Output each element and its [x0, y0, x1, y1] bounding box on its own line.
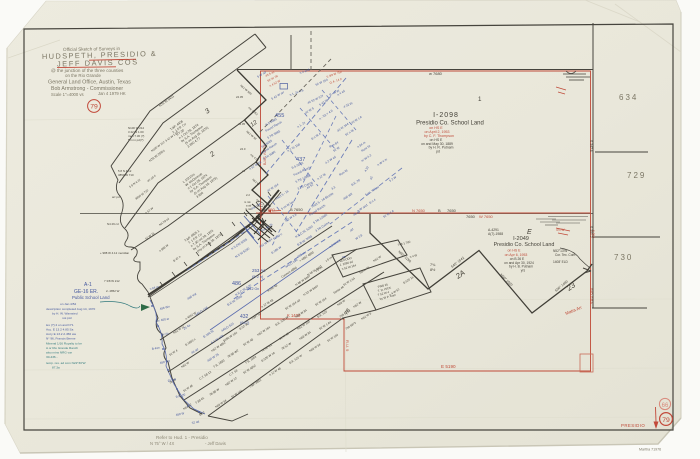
svg-text:1912 Gn: 1912 Gn	[246, 287, 259, 291]
svg-text:m mk: m mk	[244, 200, 251, 204]
svg-text:24.0: 24.0	[240, 147, 246, 151]
svg-text:5 350: 5 350	[591, 230, 595, 238]
svg-text:yrs: yrs	[521, 268, 526, 272]
svg-text:1: 1	[478, 96, 482, 103]
svg-text:79: 79	[662, 417, 670, 424]
svg-text:- Jeff Davis: - Jeff Davis	[205, 441, 226, 446]
svg-text:N° 96, Francis Beene: N° 96, Francis Beene	[46, 337, 76, 341]
svg-text:A-1: A-1	[84, 282, 92, 288]
svg-text:on Jan 4/52: on Jan 4/52	[60, 302, 76, 306]
svg-text:B: B	[438, 208, 441, 213]
svg-text:n4.05: n4.05	[238, 122, 245, 126]
svg-text:E 5190: E 5190	[441, 364, 456, 369]
svg-text:A(7)-1988: A(7)-1988	[488, 232, 503, 236]
svg-text:(5 2 v): (5 2 v)	[252, 274, 264, 279]
svg-text:pd: pd	[436, 149, 440, 153]
svg-text:66: 66	[662, 403, 669, 409]
svg-text:2.2: 2.2	[246, 193, 250, 197]
svg-text:Public School Land: Public School Land	[72, 295, 110, 300]
svg-text:w 7680: w 7680	[429, 71, 443, 76]
svg-text:les (?) 2 on and N°1: les (?) 2 on and N°1	[46, 323, 74, 327]
svg-text:729: 729	[627, 171, 646, 180]
svg-text:+ 988 W 4.12 meridian: + 988 W 4.12 meridian	[100, 251, 130, 255]
svg-text:634: 634	[619, 93, 638, 102]
svg-text:R.U. 9: R.U. 9	[345, 340, 350, 352]
svg-text:a ab: a ab	[246, 204, 252, 208]
svg-text:General Land Office, Austin, T: General Land Office, Austin, Texas	[48, 80, 131, 86]
svg-text:RIO GRA: RIO GRA	[589, 288, 593, 305]
svg-text:87.3a: 87.3a	[52, 366, 60, 370]
svg-text:also mins NRG var: also mins NRG var	[46, 351, 72, 355]
svg-text:Presidio Co. School Land: Presidio Co. School Land	[416, 121, 484, 127]
svg-text:24.05: 24.05	[236, 95, 243, 99]
svg-text:Scale 1"=4000 vs: Scale 1"=4000 vs	[51, 92, 84, 97]
svg-text:3850 W 710: 3850 W 710	[118, 173, 134, 177]
svg-text:S 347.6: S 347.6	[589, 140, 593, 152]
svg-text:not ptd: not ptd	[62, 316, 72, 320]
svg-text:730: 730	[614, 253, 633, 262]
svg-text:n4: n4	[242, 169, 246, 173]
svg-text:486: 486	[232, 281, 241, 287]
svg-text:7650: 7650	[447, 208, 457, 213]
svg-text:1408' ELD: 1408' ELD	[553, 260, 568, 264]
svg-text:Cor. Tex. Com.: Cor. Tex. Com.	[555, 253, 576, 257]
svg-text:I-2098: I-2098	[433, 112, 459, 119]
svg-text:m mk: m mk	[245, 207, 252, 211]
svg-text:Martha 71976: Martha 71976	[639, 448, 661, 452]
svg-text:8½: 8½	[430, 268, 436, 272]
svg-text:Accy E 13.2 A 456 aw: Accy E 13.2 A 456 aw	[46, 332, 77, 336]
svg-text:4¾ W: 4¾ W	[556, 228, 564, 232]
svg-text:466: 466	[259, 225, 264, 229]
svg-text:253 Ac: 253 Ac	[252, 268, 266, 273]
svg-text:Acc. E 13.2 4.85 Sa: Acc. E 13.2 4.85 Sa	[46, 328, 74, 332]
svg-text:Refer to Hud. 1 - Presidio: Refer to Hud. 1 - Presidio	[156, 435, 208, 440]
svg-text:arr pd: arr pd	[112, 195, 120, 199]
svg-text:2- 4852 W: 2- 4852 W	[106, 289, 120, 293]
svg-text:on the Rio Grande: on the Rio Grande	[65, 73, 101, 78]
svg-text:79: 79	[90, 103, 98, 110]
svg-text:7650: 7650	[466, 214, 476, 219]
svg-text:N4 29 cd: N4 29 cd	[107, 222, 119, 226]
svg-text:by H. W. Wamsted: by H. W. Wamsted	[52, 312, 78, 316]
svg-text:N 7650: N 7650	[412, 208, 426, 213]
svg-text:Presidio Co. School Land: Presidio Co. School Land	[494, 242, 555, 248]
svg-text:PRESIDIO: PRESIDIO	[621, 423, 645, 428]
svg-text:7¾: 7¾	[430, 263, 436, 267]
svg-text:Mineral 1/16 Royalty to be: Mineral 1/16 Royalty to be	[46, 342, 82, 346]
svg-text:temp. res. ad com N22°30'W: temp. res. ad com N22°30'W	[46, 361, 86, 365]
svg-text:E: E	[527, 229, 532, 236]
svg-text:W 7650: W 7650	[479, 214, 494, 219]
svg-text:Jan 4 1979 HK: Jan 4 1979 HK	[98, 91, 126, 96]
svg-text:A or Rio Grande Ranch: A or Rio Grande Ranch	[46, 346, 78, 350]
svg-text:455: 455	[275, 113, 284, 119]
svg-text:by H. R. Putnam: by H. R. Putnam	[429, 146, 454, 150]
svg-text:30-436 -: 30-436 -	[46, 355, 58, 359]
svg-text:description completed Aug 14: description completed Aug 14, 1970	[46, 307, 95, 311]
svg-text:5 mi n pd(?): 5 mi n pd(?)	[128, 138, 143, 142]
svg-text:N 75° W / 4X: N 75° W / 4X	[150, 441, 174, 446]
svg-text:7 3/8 W 212: 7 3/8 W 212	[104, 279, 120, 283]
svg-text:B 7650: B 7650	[290, 207, 303, 212]
